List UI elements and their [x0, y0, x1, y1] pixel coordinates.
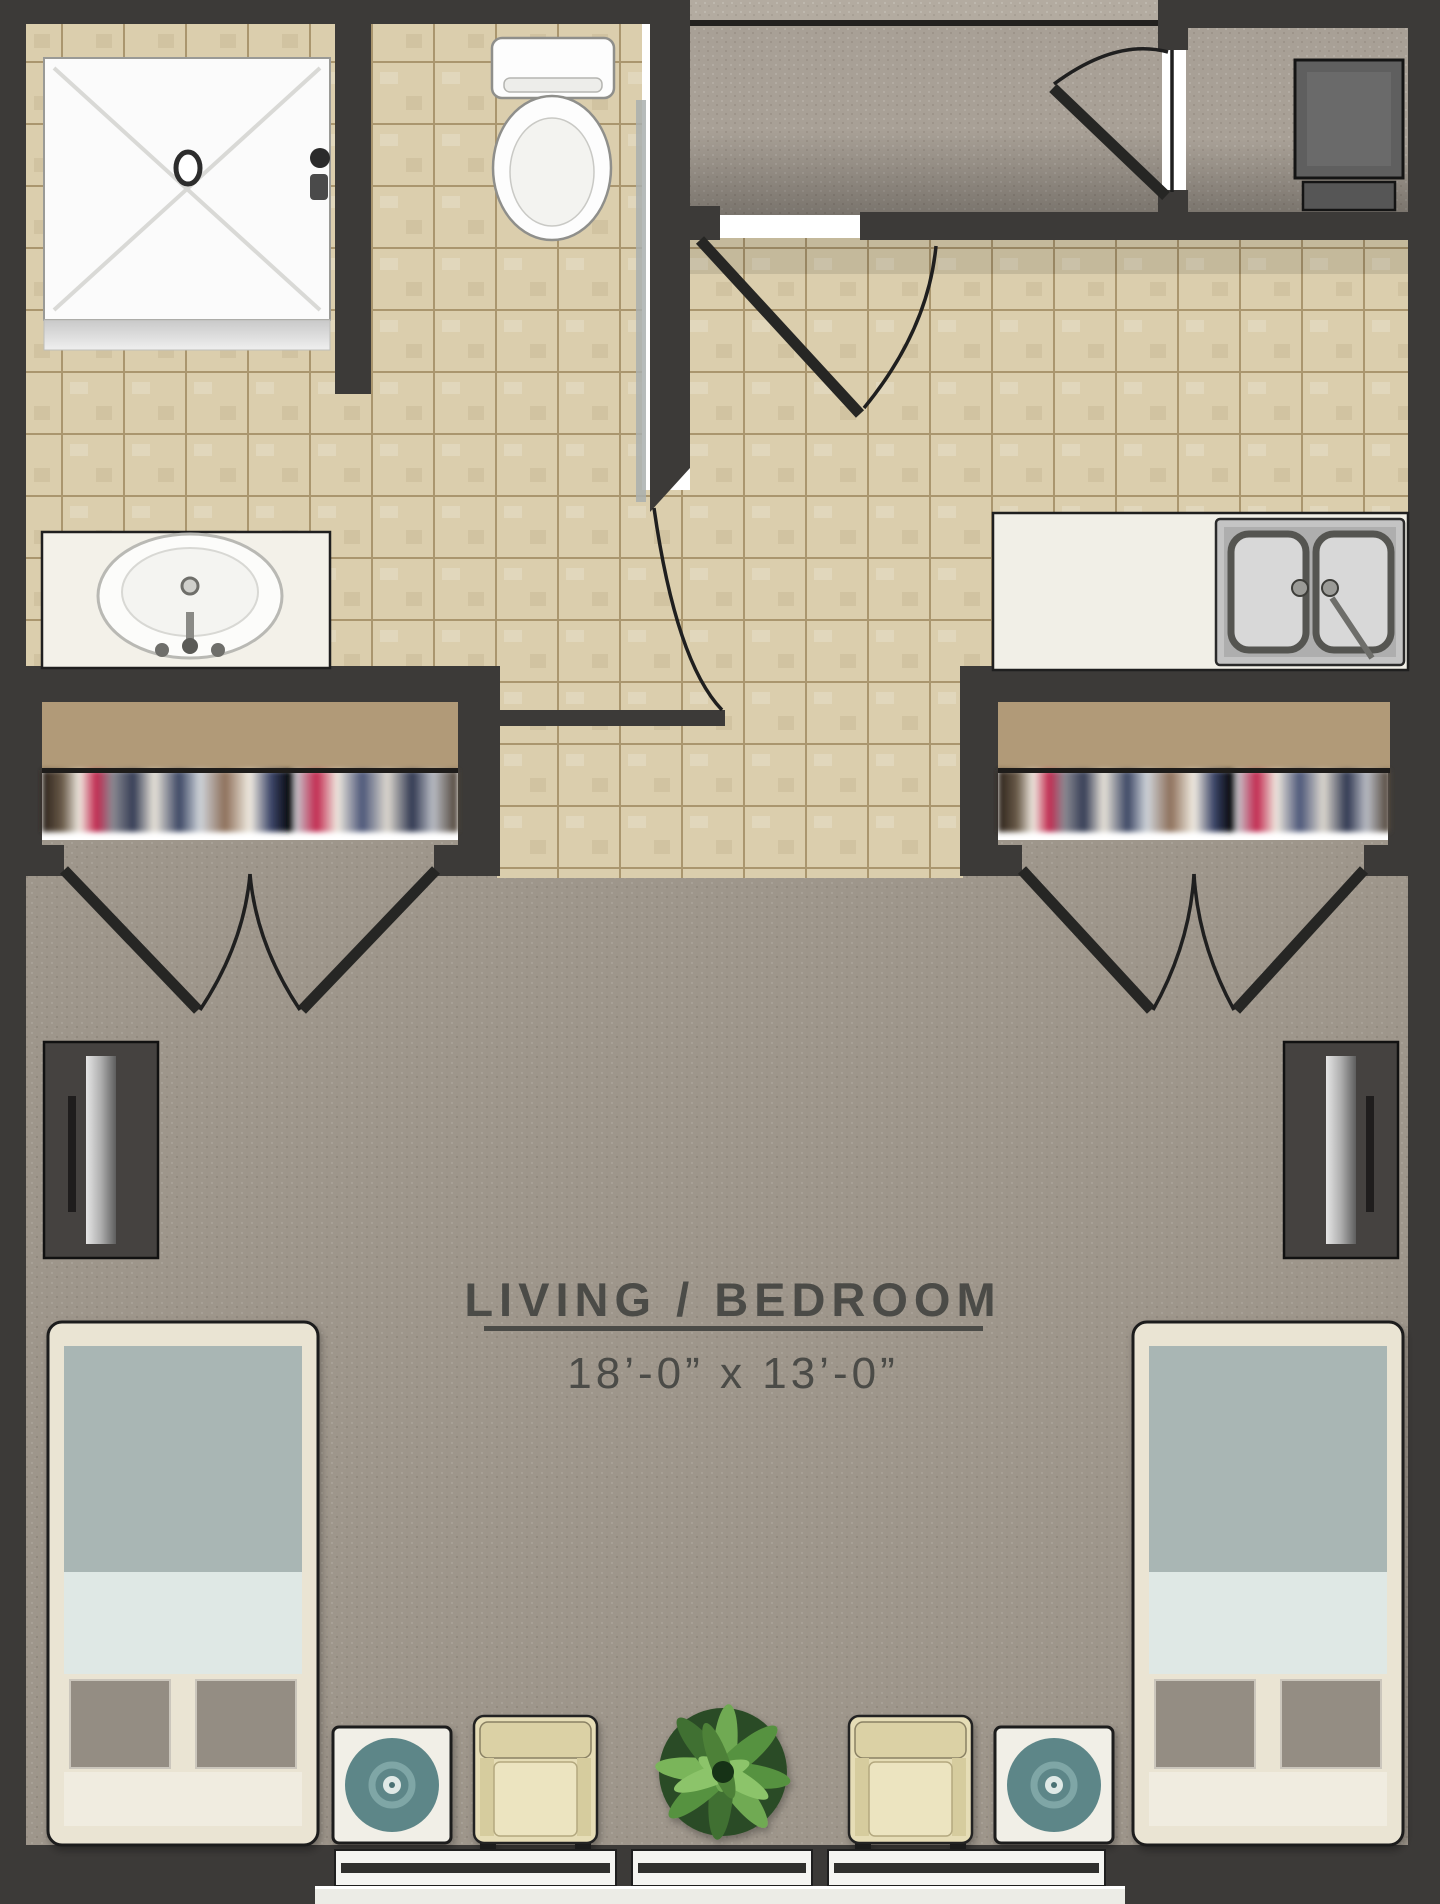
kitchen-counter [993, 513, 1408, 670]
wall-closet-right-left-side [960, 666, 998, 876]
closet-right [998, 702, 1390, 832]
armchair-left-arm-a [480, 1758, 494, 1836]
shower-faucet [310, 148, 330, 168]
closet-right-shelf [998, 702, 1390, 770]
sink-handle-right [211, 643, 225, 657]
closet-left-clothes [42, 770, 458, 832]
armchair-left-back [480, 1722, 591, 1758]
side-table-left-dot [389, 1782, 395, 1788]
corridor-floor [497, 700, 963, 878]
tv-left-vent [68, 1096, 76, 1212]
shower-faucet-handle [310, 174, 328, 200]
tv-right-vent [1366, 1096, 1374, 1212]
wall-left [0, 0, 26, 1904]
bed-left-blanket [64, 1346, 302, 1572]
shower-curb [44, 320, 330, 350]
tv-stand-left [44, 1042, 158, 1258]
shower [44, 58, 330, 350]
entry-threshold-line [688, 20, 1162, 26]
closet-left-rod [42, 768, 458, 773]
shower-glass-panel [636, 100, 646, 502]
plant-center [712, 1761, 734, 1783]
room-label: LIVING / BEDROOM [464, 1273, 1001, 1326]
bed-left-pad-a [70, 1680, 170, 1768]
window-sill-highlight [315, 1886, 1125, 1889]
bathroom-doorway-floor [640, 490, 692, 720]
appliance-top [1307, 72, 1391, 166]
side-table-left [333, 1727, 451, 1843]
sink-faucet [186, 612, 194, 640]
wall-closet-right-top [960, 668, 1408, 704]
stub-closet-left-b [434, 845, 458, 876]
armchair-right [849, 1716, 972, 1851]
wall-closet-left-right-side [458, 666, 500, 876]
appliance-tray [1303, 182, 1395, 210]
bed-left-footboard [64, 1772, 302, 1826]
toilet-seat [510, 118, 594, 226]
bed-left-sheet [64, 1572, 302, 1674]
armchair-right-back [855, 1722, 966, 1758]
sink-faucet-knob-right [1322, 580, 1338, 596]
closet-left [42, 702, 458, 832]
armchair-right-seat [869, 1762, 952, 1836]
armchair-right-arm-a [855, 1758, 869, 1836]
armchair-left-arm-b [577, 1758, 591, 1836]
bed-right-blanket [1149, 1346, 1387, 1572]
toilet [492, 38, 614, 240]
entry-corridor-shadow [690, 130, 1162, 215]
windows [315, 1850, 1125, 1904]
armchair-right-arm-b [952, 1758, 966, 1836]
wall-shower-divider [335, 22, 371, 394]
wall-top-right [1160, 0, 1440, 28]
sink-handle-left [155, 643, 169, 657]
wall-top [0, 0, 690, 24]
closet-left-shelf [42, 702, 458, 770]
bed-left-pad-b [196, 1680, 296, 1768]
bed-left [48, 1322, 318, 1845]
bed-right-pad-a [1155, 1680, 1255, 1768]
armchair-left [474, 1716, 597, 1851]
kitchen-sink [1216, 519, 1404, 665]
floor-plan: LIVING / BEDROOM 18’-0” x 13’-0” [0, 0, 1440, 1904]
bed-right [1133, 1322, 1403, 1845]
bed-right-sheet [1149, 1572, 1387, 1674]
window-sill-band [315, 1888, 1125, 1904]
tv-stand-right [1284, 1042, 1398, 1258]
tv-left-screen [86, 1056, 116, 1244]
bed-right-footboard [1149, 1772, 1387, 1826]
window-segment-center [632, 1850, 812, 1886]
side-table-right-dot [1051, 1782, 1057, 1788]
sink-faucet-knob-left [1292, 580, 1308, 596]
wall-closet-right-side [1388, 666, 1410, 876]
wall-bathroom-threshold [497, 710, 725, 726]
stub-closet-right-a [998, 845, 1022, 876]
wall-closet-left-top [22, 666, 500, 704]
closet-right-clothes [998, 770, 1390, 832]
window-segment-right [828, 1850, 1105, 1886]
wall-entry-jamb-top [1158, 0, 1188, 50]
side-table-right [995, 1727, 1113, 1843]
entry-vestibule [1295, 60, 1403, 210]
kitchen-wall-shadow [690, 238, 1410, 274]
vanity-sink [42, 532, 330, 668]
wall-bathroom-right [650, 22, 690, 512]
tv-right-screen [1326, 1056, 1356, 1244]
stub-closet-right-b [1364, 845, 1388, 876]
bed-right-pad-b [1281, 1680, 1381, 1768]
outside-corridor-strip [688, 0, 1162, 20]
window-segment-left [335, 1850, 616, 1886]
room-dimensions: 18’-0” x 13’-0” [567, 1349, 898, 1398]
closet-right-rod [998, 768, 1390, 773]
floor-plan-canvas: LIVING / BEDROOM 18’-0” x 13’-0” [0, 0, 1440, 1904]
stub-closet-left-a [40, 845, 64, 876]
shower-drain [176, 152, 200, 184]
armchair-left-seat [494, 1762, 577, 1836]
wall-closet-left-side [22, 700, 42, 876]
room-label-underline [484, 1326, 983, 1331]
sink-faucet-base [182, 638, 198, 654]
wall-corridor-south [860, 212, 1408, 240]
toilet-tank-lid [504, 78, 602, 92]
wall-corridor-south-stub [690, 206, 720, 240]
sink-drain [182, 578, 198, 594]
wall-right [1408, 0, 1440, 1904]
